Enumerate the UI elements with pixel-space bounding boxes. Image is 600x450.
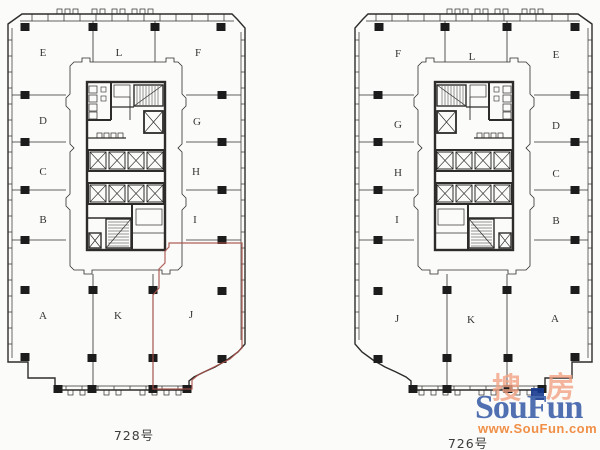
room-label-C: C — [39, 166, 46, 178]
room-label-D: D — [552, 120, 560, 132]
plan-728-drawing — [8, 9, 245, 395]
room-label-I: I — [193, 214, 197, 226]
room-label-J: J — [395, 313, 400, 325]
room-label-K: K — [467, 314, 475, 326]
room-label-J: J — [189, 309, 194, 321]
room-label-A: A — [39, 310, 47, 322]
plan-726-drawing — [355, 9, 592, 395]
room-label-E: E — [553, 49, 560, 61]
room-label-B: B — [39, 214, 46, 226]
watermark-brand: SouFun — [475, 391, 582, 425]
plan-726-caption: 726号 — [448, 436, 488, 450]
watermark-url: www.SouFun.com — [478, 422, 597, 435]
room-label-L: L — [469, 51, 476, 63]
room-label-L: L — [116, 47, 123, 59]
room-label-K: K — [114, 310, 122, 322]
room-label-B: B — [552, 215, 559, 227]
room-label-C: C — [552, 168, 559, 180]
room-label-F: F — [195, 47, 201, 59]
room-label-G: G — [193, 116, 201, 128]
room-label-H: H — [394, 167, 402, 179]
room-label-I: I — [395, 214, 399, 226]
plan-728: ELFDGCHBIAKJ728号 — [8, 9, 245, 443]
room-label-E: E — [40, 47, 47, 59]
highlight-outline-unit-J — [153, 243, 242, 389]
room-label-D: D — [39, 115, 47, 127]
room-label-G: G — [394, 119, 402, 131]
room-label-H: H — [192, 166, 200, 178]
room-label-A: A — [551, 313, 559, 325]
room-label-F: F — [395, 48, 401, 60]
plan-728-caption: 728号 — [114, 428, 154, 443]
floorplan-sheet: ELFDGCHBIAKJ728号FLEGDHCIBJKA726号 搜 房 Sou… — [0, 0, 600, 450]
